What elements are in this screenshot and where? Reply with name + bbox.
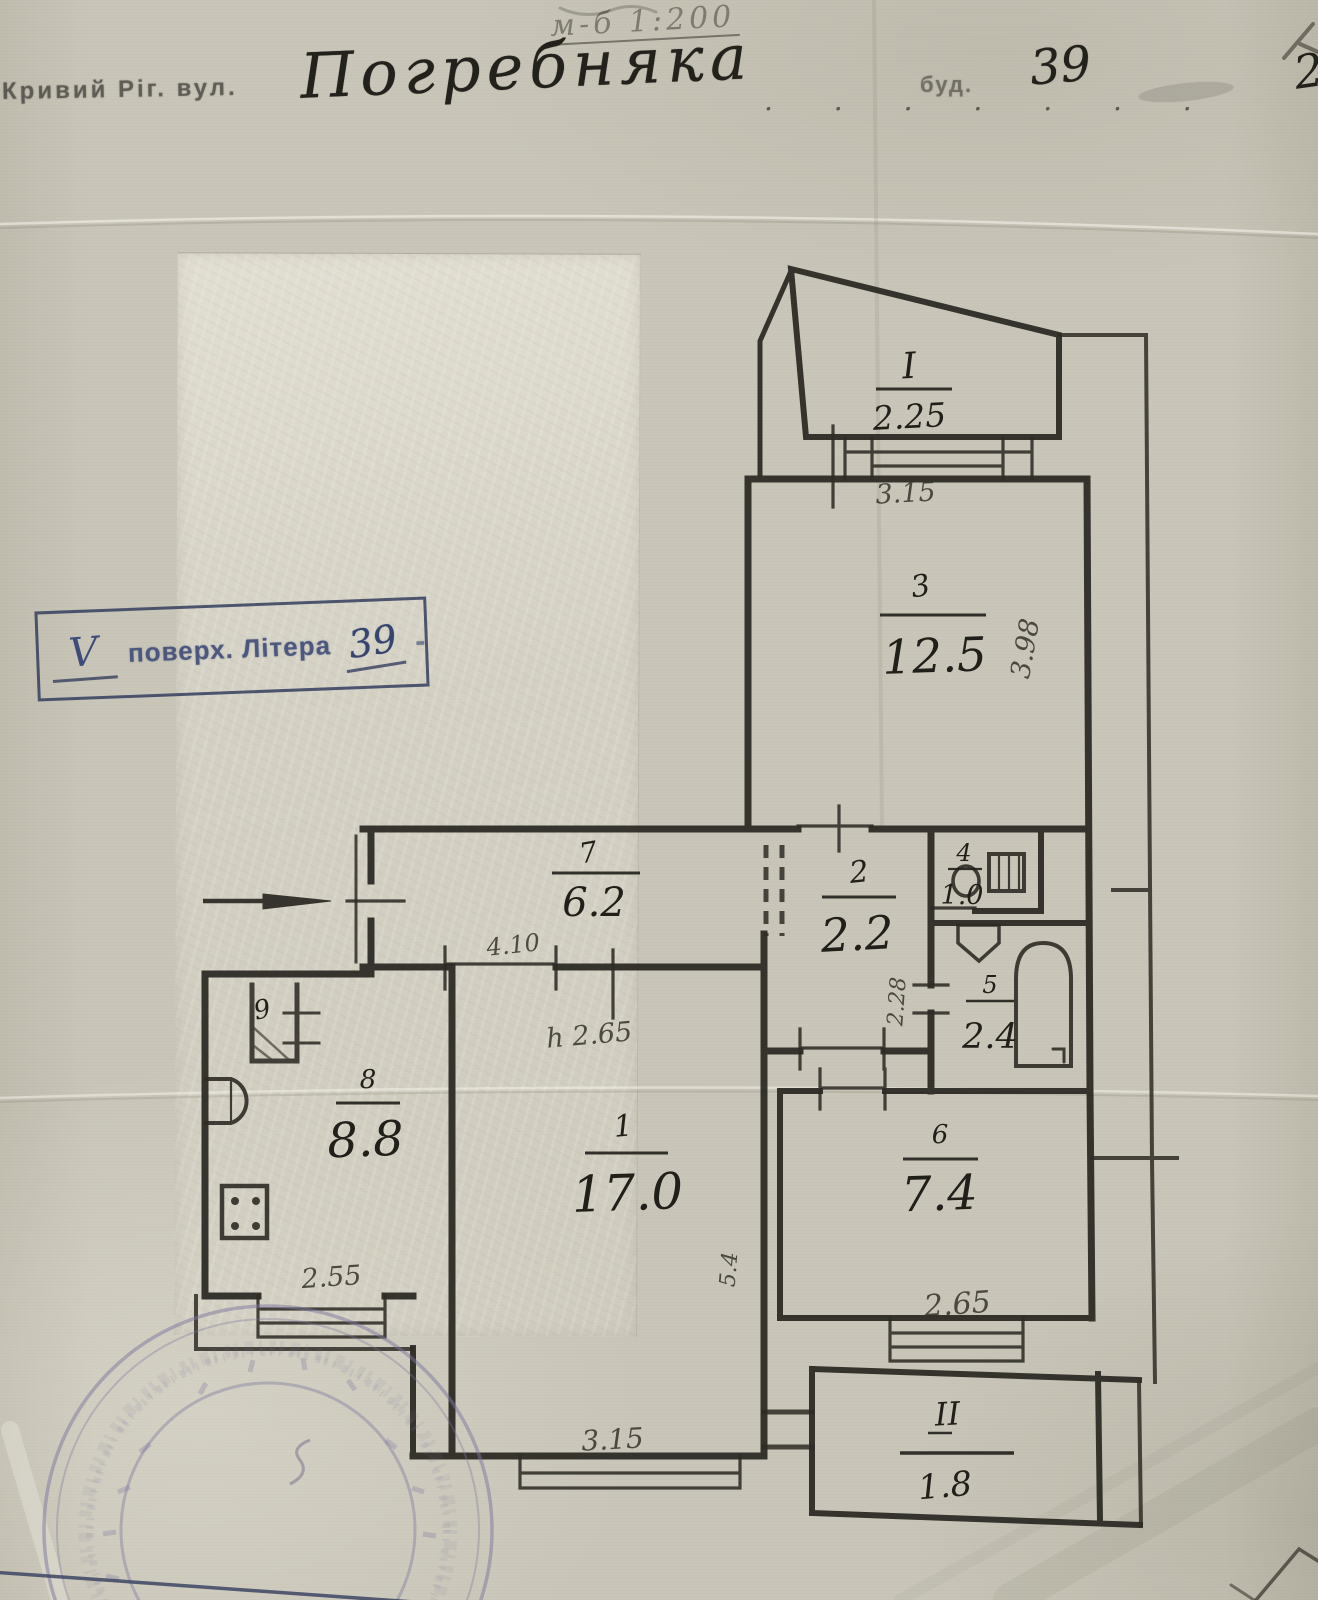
outer-wall-top-left-step — [760, 271, 791, 479]
hall-area: 2.2 — [818, 905, 895, 963]
kitchen-area: 8.8 — [326, 1111, 404, 1170]
dim-corridor-width: 4.10 — [484, 928, 541, 962]
pantry-door-ticks — [284, 1013, 319, 1043]
washbasin-icon — [958, 925, 999, 961]
living-area: 17.0 — [571, 1162, 684, 1224]
room6-number: 6 — [932, 1120, 949, 1150]
balcony-II-stubs — [764, 1412, 812, 1447]
bath-area: 2.4 — [961, 1017, 1018, 1057]
living-window — [520, 1456, 740, 1488]
dim-living-depth: 5.4 — [716, 1251, 744, 1288]
stove-icon — [222, 1186, 267, 1238]
entrance-arrow — [203, 894, 331, 909]
kitchen-number: 8 — [360, 1065, 377, 1095]
stamp-inner-smudge — [290, 1440, 310, 1484]
balcony2-area: 1.8 — [916, 1464, 973, 1509]
corridor-hall-dashed-opening — [766, 845, 782, 936]
corridor-number: 7 — [577, 835, 600, 871]
label-fraction-bars — [336, 389, 1014, 1453]
bath-number: 5 — [982, 971, 997, 999]
balcony2-number: II — [933, 1394, 963, 1433]
room3-area: 12.5 — [881, 627, 988, 686]
wc-area: 1.0 — [941, 880, 984, 911]
scan-artifacts — [0, 6, 1318, 1600]
bath-door-ticks — [914, 985, 948, 1013]
kitchen-sink-icon — [206, 1079, 247, 1123]
dim-balcony1-width: 3.15 — [875, 476, 937, 510]
room6-area: 7.4 — [900, 1165, 978, 1224]
dim-living-width: 3.15 — [581, 1421, 645, 1457]
hall-number: 2 — [847, 854, 871, 891]
stove-burners — [231, 1197, 260, 1230]
dim-hall-depth: 2.28 — [883, 976, 911, 1028]
kitchen-window — [258, 1296, 385, 1337]
room6-window — [890, 1318, 1023, 1361]
hall-room6-door — [800, 1029, 884, 1069]
living-height-note: h 2.65 — [545, 1016, 633, 1054]
paper-creases — [0, 0, 1318, 1600]
corridor-area: 6.2 — [562, 880, 626, 926]
toilet-tank-hatch — [999, 854, 1019, 891]
floor-plan-drawing: I 2.25 3.15 3 12.5 3.98 7 6.2 4.10 h 2.6… — [0, 0, 1318, 1600]
room6-door-opening — [820, 1069, 885, 1109]
outer-wall-right — [1059, 335, 1155, 1525]
dim-kitchen-width: 2.55 — [299, 1260, 362, 1295]
room3-number: 3 — [908, 568, 932, 606]
bathtub-drain — [1053, 1049, 1064, 1062]
balcony1-area: 2.25 — [871, 395, 947, 438]
room3-door-opening — [798, 806, 872, 851]
balcony1-number: I — [900, 346, 919, 388]
living-number: 1 — [612, 1108, 634, 1145]
stamp-text-marks — [103, 1358, 436, 1579]
entrance-arrowhead — [263, 894, 331, 909]
wall-ties — [1092, 890, 1177, 1158]
dim-room3-depth: 3.98 — [1005, 616, 1046, 681]
balcony-I-window — [845, 438, 1032, 479]
scanned-floor-plan-sheet: м-б 1:200 Кривий Ріг. вул. Погребняка . … — [0, 0, 1318, 1600]
balcony-II-walls — [812, 1369, 1140, 1525]
wc-number: 4 — [955, 839, 971, 867]
outer-walls — [196, 335, 1177, 1525]
dim-room6-width: 2.65 — [922, 1285, 992, 1325]
